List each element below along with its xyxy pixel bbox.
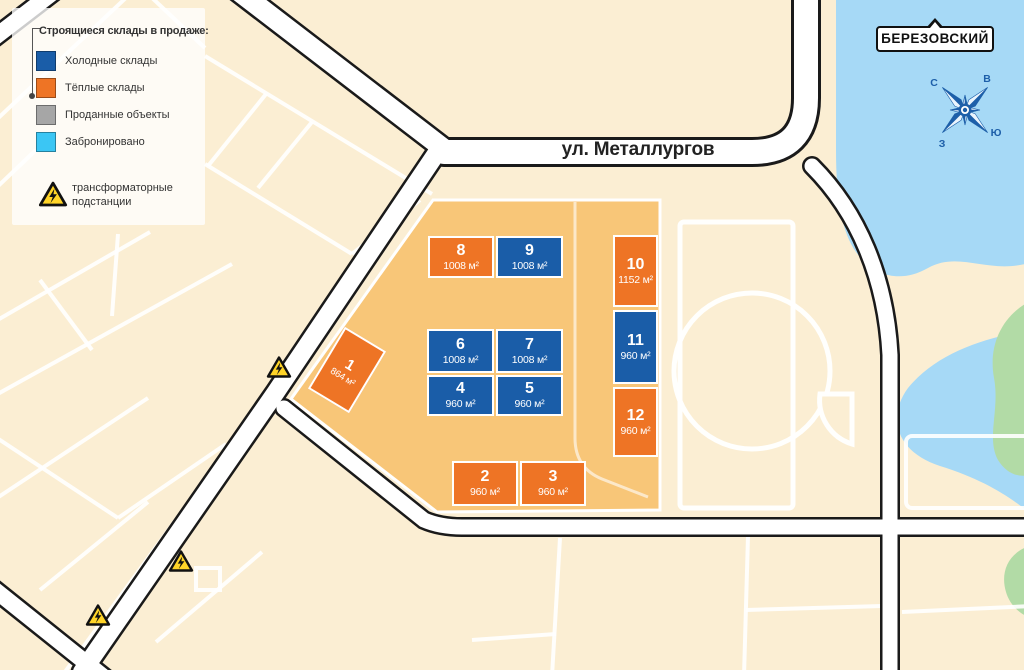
compass-label-west: З (939, 138, 946, 150)
warehouse-block-9[interactable]: 9 1008 м² (496, 236, 563, 278)
legend-item-sold: Проданные объекты (36, 105, 170, 125)
legend-item-label: Проданные объекты (65, 109, 170, 121)
sign-pointer-patch (930, 28, 940, 31)
warehouse-number: 8 (457, 243, 466, 259)
warehouse-area: 960 м² (515, 399, 545, 410)
warehouse-area: 1152 м² (618, 275, 653, 286)
warehouse-number: 3 (549, 469, 558, 485)
warehouse-block-8[interactable]: 8 1008 м² (428, 236, 494, 278)
legend-item-label: Тёплые склады (65, 82, 145, 94)
warehouse-number: 1 (343, 356, 358, 373)
warehouse-block-4[interactable]: 4 960 м² (427, 375, 494, 416)
transformer-legend-icon (38, 180, 68, 208)
street-label: ул. Металлургов (548, 139, 728, 161)
warehouse-number: 9 (525, 243, 534, 259)
transformer-legend-label: трансформаторные подстанции (72, 182, 192, 210)
legend-item-warm: Тёплые склады (36, 78, 145, 98)
warehouse-area: 960 м² (446, 399, 476, 410)
compass-label-south: Ю (991, 127, 1002, 139)
sign-pointer-inner (930, 22, 940, 28)
warehouse-number: 4 (456, 381, 465, 397)
legend-item-label: Забронировано (65, 136, 145, 148)
warehouse-block-3[interactable]: 3 960 м² (520, 461, 586, 506)
warehouse-number: 2 (481, 469, 490, 485)
town-sign-label: БЕРЕЗОВСКИЙ (881, 31, 989, 46)
warehouse-area: 1008 м² (443, 261, 479, 272)
legend-item-cold: Холодные склады (36, 51, 157, 71)
legend-item-label: Холодные склады (65, 55, 157, 67)
reserved-swatch (36, 132, 56, 152)
compass-label-east: В (983, 73, 991, 85)
warehouse-block-2[interactable]: 2 960 м² (452, 461, 518, 506)
warehouse-number: 5 (525, 381, 534, 397)
warehouse-block-11[interactable]: 11 960 м² (613, 310, 658, 384)
warehouse-block-10[interactable]: 10 1152 м² (613, 235, 658, 307)
compass-label-north: С (930, 77, 938, 89)
legend-title: Строящиеся склады в продаже: (39, 25, 209, 37)
town-sign: БЕРЕЗОВСКИЙ (876, 26, 994, 52)
warehouse-area: 1008 м² (443, 355, 479, 366)
warehouse-block-7[interactable]: 7 1008 м² (496, 329, 563, 373)
cold-warehouse-swatch (36, 51, 56, 71)
warm-warehouse-swatch (36, 78, 56, 98)
warehouse-number: 12 (627, 408, 645, 424)
warehouse-block-5[interactable]: 5 960 м² (496, 375, 563, 416)
warehouse-area: 960 м² (621, 426, 651, 437)
warehouse-area: 960 м² (470, 487, 500, 498)
warehouse-number: 6 (456, 337, 465, 353)
warehouse-block-12[interactable]: 12 960 м² (613, 387, 658, 457)
warehouse-number: 11 (627, 333, 644, 349)
warehouse-number: 7 (525, 337, 534, 353)
warehouse-area: 960 м² (538, 487, 568, 498)
warehouse-area: 1008 м² (512, 355, 548, 366)
legend-bracket-dot (29, 93, 35, 99)
warehouse-block-6[interactable]: 6 1008 м² (427, 329, 494, 373)
warehouse-area: 1008 м² (512, 261, 548, 272)
site-plan-map: С В З Ю ул. Металлургов БЕРЕЗОВСКИЙ 1 86… (0, 0, 1024, 670)
legend-item-reserved: Забронировано (36, 132, 145, 152)
warehouse-number: 10 (627, 257, 645, 273)
warehouse-area: 960 м² (621, 351, 651, 362)
sold-object-swatch (36, 105, 56, 125)
legend-panel: Строящиеся склады в продаже: Холодные ск… (12, 8, 205, 225)
